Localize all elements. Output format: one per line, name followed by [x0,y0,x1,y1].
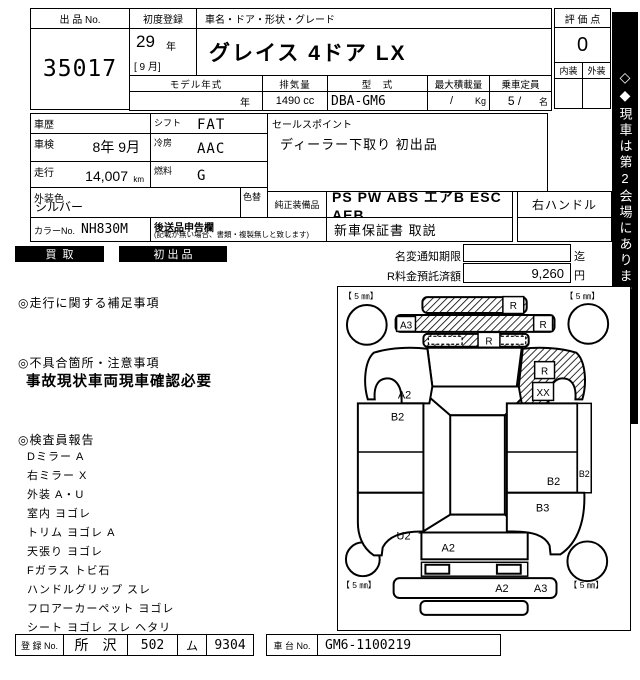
mark-front-bumper-r: R [510,301,517,312]
mark-rf-fender-xx: XX [536,388,550,399]
sill-right [577,403,591,492]
repaint-cell: 色替 [240,187,269,218]
hood [427,348,521,387]
mark-l-door-b2: B2 [391,411,404,423]
mileage-label: 走行 [34,164,54,179]
equipment-label: 純正装備品 [267,191,327,218]
headlight-left [428,336,462,344]
color-no-cell: カラーNo. NH830M [30,217,151,242]
payload-col: 最大積載量 / Kg [427,75,490,111]
inspector-report-list: Dミラー A 右ミラー X 外装 A・U 室内 ヨゴレ トリム ヨゴレ A 天張… [27,448,174,638]
color-no-label: カラーNo. [34,224,75,237]
tread-depth-front-left: 【 5 ㎜】 [343,291,378,301]
name-change-deadline-suffix: 迄 [574,248,585,264]
interior-exterior-header: 内装 外装 [555,63,610,79]
chassis-no-label: 車 台 No. [266,634,318,656]
registration-area: 所 沢 [64,634,128,656]
shift-label: シフト [154,116,181,129]
sales-point-box: セールスポイント ディーラー下取り 初出品 [267,113,548,192]
model-code-label: 型 式 [328,76,427,92]
venue-notice-text: 現車は第2会場にあります [616,107,635,301]
mark-r-door-b2: B2 [547,476,560,488]
history-label: 車歴 [34,116,54,131]
name-change-deadline-box [463,244,571,262]
fuel-cell: 燃料 G [150,161,269,188]
exterior-label: 外装 [582,63,610,78]
mark-rear-bumper-a3: A3 [534,583,547,595]
history-cell: 車歴 [30,113,151,134]
payload-unit: Kg [475,96,489,106]
interior-value [555,79,582,108]
first-reg-year-unit: 年 [166,38,176,53]
repaint-label: 色替 [243,190,261,203]
cooling-label: 冷房 [154,136,172,149]
car-name-header: 車名・ドア・形状・グレード [196,8,552,29]
tread-depth-front-right: 【 5 ㎜】 [565,291,600,301]
inspection-label: 車検 [34,136,54,151]
exterior-color-cell: 外装色 シルバー [30,187,241,218]
rear-bumper [394,578,557,598]
car-name-value: グレイス 4ドア LX [196,28,552,76]
inspector-item: 外装 A・U [27,486,174,505]
inspector-item: 天張り ヨゴレ [27,543,174,562]
later-items-note: (記載が無い場合、書類・複製無しと致します) [154,229,309,240]
inspector-item: Dミラー A [27,448,174,467]
score-label: 評 価 点 [555,9,610,28]
cooling-cell: 冷房 AAC [150,133,269,162]
mark-grille-r: R [485,336,492,347]
capacity-label: 乗車定員 [490,76,551,92]
sales-point-label: セールスポイント [272,116,352,131]
capacity-value-row: 5 / 名 [490,92,551,110]
first-listing-badge: 初出品 [119,246,227,262]
mark-rear-bumper-a2: A2 [495,583,508,595]
steering-position: 右ハンドル [517,191,612,218]
quarter-rear-left [358,493,424,556]
equipment-value: PS PW ABS エアB ESC AEB [326,191,513,218]
tread-depth-rear-left: 【 5 ㎜】 [342,580,377,590]
fuel-label: 燃料 [154,164,172,177]
registration-class: 502 [128,634,178,656]
capacity-unit: 名 [539,95,551,108]
displacement-col: 排気量 1490 cc [262,75,328,111]
displacement-label: 排気量 [263,76,327,92]
inspector-report-title: ◎検査員報告 [18,431,94,448]
recycle-deposit-box: 9,260 [463,263,571,283]
lot-no-value: 35017 [30,28,130,110]
diamond-open-icon: ◇ [620,68,631,86]
tire-rear-right [567,541,607,581]
doors-right [507,403,578,492]
mark-lf-fender-a2: A2 [398,389,411,401]
first-registration-label: 初度登録 [129,8,197,29]
mark-r-quarter-b3: B3 [536,503,549,515]
displacement-value: 1490 cc [263,92,327,110]
model-code-value: DBA-GM6 [328,92,427,110]
inspector-item: 右ミラー X [27,467,174,486]
registration-label: 登 録 No. [15,634,64,656]
cooling-value: AAC [197,141,225,157]
mileage-value: 14,007 [85,168,128,184]
inspector-item: ハンドルグリップ スレ [27,581,174,600]
score-value: 0 [555,28,610,63]
mark-hood-r: R [540,320,547,331]
interior-label: 内装 [555,63,582,78]
auction-sheet: { "header": { "lot_label": "出 品 No.", "l… [0,0,640,680]
model-code-col: 型 式 DBA-GM6 [327,75,428,111]
chassis-no-value: GM6-1100219 [318,634,501,656]
documents-value: 新車保証書 取説 [326,217,513,242]
defects-text: 事故現状車両現車確認必要 [26,370,212,391]
mileage-unit: km [133,175,144,184]
defects-title: ◎不具合箇所・注意事項 [18,354,159,371]
damage-diagram: 【 5 ㎜】 【 5 ㎜】 【 5 ㎜】 【 5 ㎜】 R A3 R R R X… [337,286,631,631]
capacity-value: 5 / [490,94,539,108]
tread-depth-rear-right: 【 5 ㎜】 [569,580,604,590]
model-year-label: モデル年式 [130,76,262,92]
mark-trunk-a2: A2 [442,542,455,554]
shift-cell: シフト FAT [150,113,269,134]
first-reg-year: 29 [136,32,155,52]
first-reg-month: [ 9 月] [134,58,161,73]
registration-kana: ム [178,634,207,656]
mark-hood-a3: A3 [400,320,413,331]
documents-extra-empty [517,217,612,242]
inspector-item: Fガラス トビ石 [27,562,174,581]
shift-value: FAT [197,117,225,133]
exterior-color-value: シルバー [35,198,83,215]
color-no-value: NH830M [81,222,128,237]
mark-l-quarter-u2: U2 [397,530,411,542]
first-registration-value: 29 年 [ 9 月] [129,28,197,76]
exterior-value [582,79,610,108]
name-change-deadline-label: 名変通知期限 [359,248,461,264]
tire-front-right [568,304,608,344]
payload-value-row: / Kg [428,92,489,110]
score-box: 評 価 点 0 内装 外装 [554,8,611,109]
recycle-deposit-label: R料金預託済額 [359,268,461,284]
registration-number: 9304 [207,634,254,656]
diamond-filled-icon: ◆ [620,86,631,104]
mark-rf-fender-r: R [541,367,548,378]
running-notes-title: ◎走行に関する補足事項 [18,294,159,311]
rear-under-bar [420,601,527,615]
trunk-lid [421,532,527,559]
tail-light-right [497,565,521,574]
registration-table: 登 録 No. 所 沢 502 ム 9304 [15,634,254,656]
payload-label: 最大積載量 [428,76,489,92]
tire-front-left [347,305,387,345]
buyout-badge: 買取 [15,246,104,262]
mileage-cell: 走行 14,007 km [30,161,151,188]
inspection-value: 8年 9月 [93,137,140,157]
payload-value: / [428,95,475,107]
mark-r-sill-b2: B2 [579,469,590,479]
later-items-cell: 後送品申告欄 (記載が無い場合、書類・複製無しと致します) [150,217,328,242]
fuel-value: G [197,168,206,184]
front-bumper-main [396,315,555,332]
roof [450,415,505,514]
model-year-col: モデル年式 年 [129,75,263,111]
inspector-item: トリム ヨゴレ A [27,524,174,543]
model-year-value: 年 [130,92,262,110]
capacity-col: 乗車定員 5 / 名 [489,75,552,111]
inspector-item: 室内 ヨゴレ [27,505,174,524]
recycle-deposit-unit: 円 [574,267,585,283]
inspection-cell: 車検 8年 9月 [30,133,151,162]
sales-point-text: ディーラー下取り 初出品 [280,134,438,153]
chassis-table: 車 台 No. GM6-1100219 [266,634,501,656]
tail-light-left [425,565,449,574]
lot-no-label: 出 品 No. [30,8,130,29]
interior-exterior-values [555,79,610,108]
inspector-item: フロアーカーペット ヨゴレ [27,600,174,619]
